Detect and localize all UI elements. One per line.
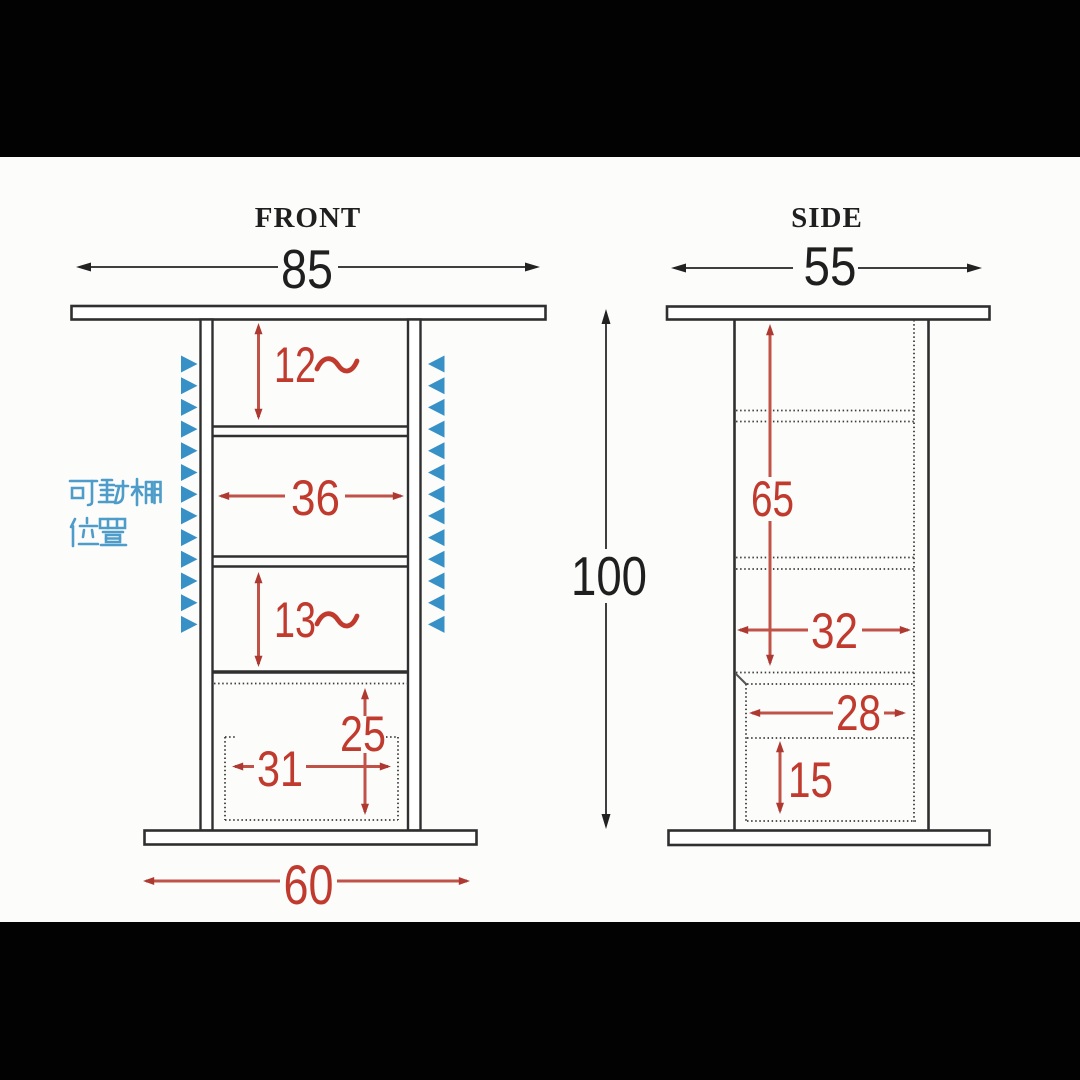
svg-text:65: 65: [751, 471, 794, 527]
svg-text:36: 36: [291, 470, 340, 526]
svg-text:SIDE: SIDE: [791, 202, 863, 234]
svg-text:12: 12: [274, 337, 316, 393]
svg-text:31: 31: [257, 741, 303, 797]
svg-text:13: 13: [274, 592, 316, 648]
svg-text:15: 15: [788, 752, 833, 808]
svg-text:FRONT: FRONT: [255, 202, 362, 234]
svg-text:60: 60: [284, 853, 334, 916]
svg-text:25: 25: [340, 706, 386, 762]
svg-text:28: 28: [836, 685, 881, 741]
svg-text:85: 85: [281, 238, 333, 300]
svg-text:32: 32: [811, 603, 858, 659]
svg-text:55: 55: [804, 235, 857, 297]
svg-text:100: 100: [571, 545, 647, 607]
